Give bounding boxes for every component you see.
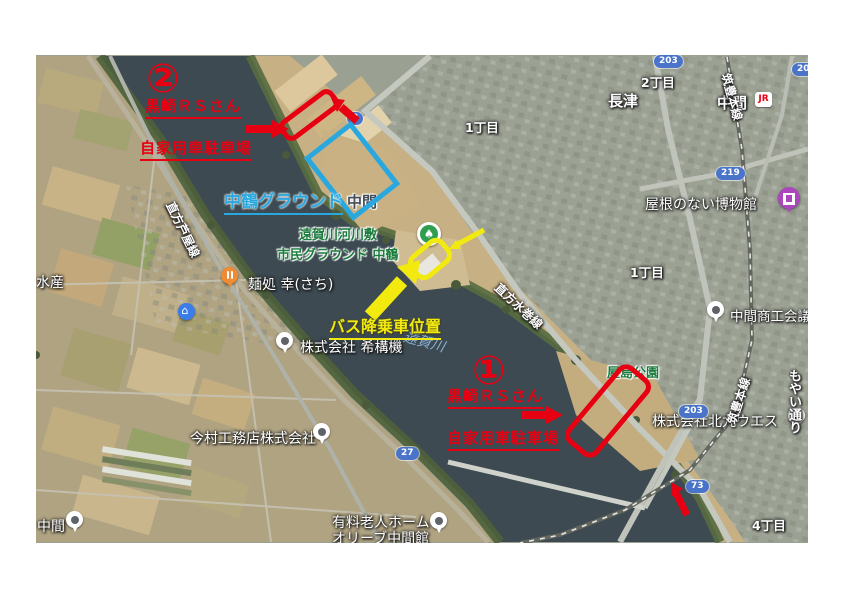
elder-home-pin[interactable] (430, 512, 447, 529)
district-label-4chome: 4丁目 (752, 515, 786, 534)
marker-2-team-label: 黒崎ＲＳさん (145, 95, 241, 119)
nakama-bottom-pin[interactable] (66, 511, 83, 528)
poi-label-elder-home-line2[interactable]: オリーブ中間館 (332, 528, 429, 543)
route-shield-219: 219 (716, 167, 745, 180)
route-shield-73: 73 (686, 480, 709, 493)
marker-1-parking-label: 自家用車駐車場 (447, 427, 559, 451)
route-shield-203-corner: 203 (792, 63, 808, 76)
district-label-1chome-top: 1丁目 (465, 117, 499, 136)
route-shield-27: 27 (396, 447, 419, 460)
marker-1-team-label: 黒崎ＲＳさん (447, 385, 543, 409)
satellite-map[interactable]: 1丁目 2丁目 長津 中間 JR 屋根のない博物館 1丁目 中間商工会議所 株式… (36, 55, 808, 543)
district-label-2chome: 2丁目 (641, 72, 675, 91)
kikouki-pin[interactable] (276, 332, 293, 349)
marker-2-parking-label: 自家用車駐車場 (140, 137, 252, 161)
poi-label-kikouki[interactable]: 株式会社 希構機 (300, 337, 402, 357)
poi-label-shoko[interactable]: 中間商工会議所 (730, 305, 808, 325)
road-label-moyai: もやい通り (784, 369, 803, 434)
park-label-line1: 遠賀川河川敷 (299, 224, 377, 243)
ground-label: 中鶴グラウンド (224, 187, 343, 215)
park-label-line2: 市民グラウンド 中鶴 (277, 244, 399, 263)
bus-position-label: バス降乗車位置 (329, 313, 441, 340)
poi-label-kitakyu-wes[interactable]: 株式会社北九ウエス (652, 411, 778, 431)
poi-label-menya-sachi[interactable]: 麺処 幸(さち) (248, 274, 333, 294)
shoko-pin[interactable] (707, 301, 724, 318)
imamura-pin[interactable] (313, 423, 330, 440)
district-label-nagatsu: 長津 (608, 90, 638, 111)
district-label-1chome-right: 1丁目 (630, 262, 664, 281)
museum-pin[interactable] (778, 187, 800, 209)
home-icon[interactable] (178, 303, 195, 320)
jr-station-icon[interactable]: JR (755, 92, 772, 107)
restaurant-pin[interactable] (221, 267, 238, 284)
route-shield-203-top: 203 (654, 55, 683, 68)
poi-label-imamura[interactable]: 今村工務店株式会社 (190, 428, 316, 448)
marker-2-number: ② (146, 59, 180, 99)
satellite-imagery (36, 55, 808, 543)
route-shield-203-bottom: 203 (679, 405, 708, 418)
poi-label-suisan: 水産 (36, 272, 64, 292)
poi-label-roofless-museum[interactable]: 屋根のない博物館 (645, 194, 757, 214)
poi-label-nakama-bottom: 中間 (37, 516, 65, 536)
